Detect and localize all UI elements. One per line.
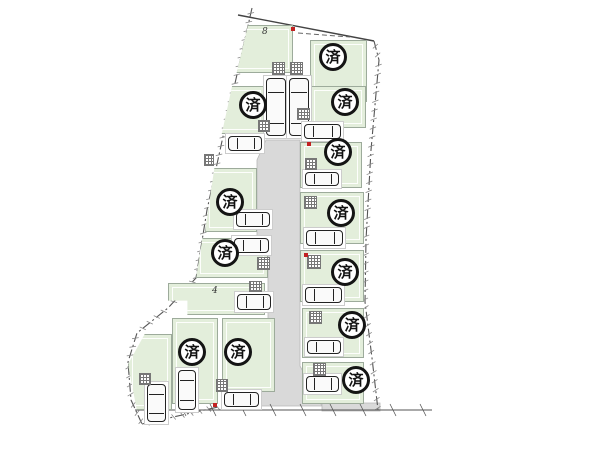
sold-mark-circle: 済 bbox=[239, 91, 267, 119]
car-icon bbox=[178, 370, 196, 410]
car-icon bbox=[306, 376, 339, 392]
car-icon bbox=[306, 230, 343, 246]
car-icon bbox=[236, 212, 270, 227]
right-boundary bbox=[365, 41, 379, 410]
car-icon bbox=[224, 392, 259, 407]
sold-mark-circle: 済 bbox=[327, 199, 355, 227]
entrance-steps-icon bbox=[313, 363, 326, 376]
entrance-steps-icon bbox=[249, 281, 262, 292]
sold-mark-circle: 済 bbox=[331, 88, 359, 116]
sold-mark-circle: 済 bbox=[178, 338, 206, 366]
car-icon bbox=[307, 340, 341, 354]
sold-mark-circle: 済 bbox=[211, 239, 239, 267]
sold-mark-circle: 済 bbox=[319, 43, 347, 71]
corner-marker bbox=[291, 27, 295, 31]
car-icon bbox=[147, 384, 166, 422]
entrance-steps-icon bbox=[297, 108, 310, 120]
entrance-steps-icon bbox=[305, 158, 317, 170]
entrance-steps-icon bbox=[272, 62, 285, 75]
lot-number-label: 8 bbox=[262, 27, 268, 37]
site-plan-canvas: 済済済済済済済済済済済済84 bbox=[0, 0, 600, 449]
sold-mark-circle: 済 bbox=[216, 188, 244, 216]
entrance-steps-icon bbox=[309, 311, 322, 324]
entrance-steps-icon bbox=[290, 62, 303, 75]
entrance-steps-icon bbox=[139, 373, 151, 385]
car-icon bbox=[228, 136, 262, 151]
sold-mark-circle: 済 bbox=[331, 258, 359, 286]
car-icon bbox=[237, 294, 271, 310]
corner-marker bbox=[213, 403, 217, 407]
car-icon bbox=[304, 124, 341, 139]
car-icon bbox=[234, 238, 269, 253]
entrance-steps-icon bbox=[204, 154, 214, 166]
corner-marker bbox=[304, 253, 308, 257]
entrance-steps-icon bbox=[304, 196, 317, 209]
sold-mark-circle: 済 bbox=[324, 138, 352, 166]
site-plan: 済済済済済済済済済済済済84 bbox=[0, 0, 600, 449]
entrance-steps-icon bbox=[258, 120, 270, 132]
car-icon bbox=[305, 172, 339, 186]
lot-number-label: 4 bbox=[212, 286, 218, 296]
car-icon bbox=[305, 287, 342, 303]
sold-mark-circle: 済 bbox=[342, 366, 370, 394]
sold-mark-circle: 済 bbox=[338, 311, 366, 339]
sold-mark-circle: 済 bbox=[224, 338, 252, 366]
entrance-steps-icon bbox=[216, 379, 228, 392]
entrance-steps-icon bbox=[307, 255, 321, 269]
corner-marker bbox=[307, 142, 311, 146]
entrance-steps-icon bbox=[257, 257, 270, 270]
